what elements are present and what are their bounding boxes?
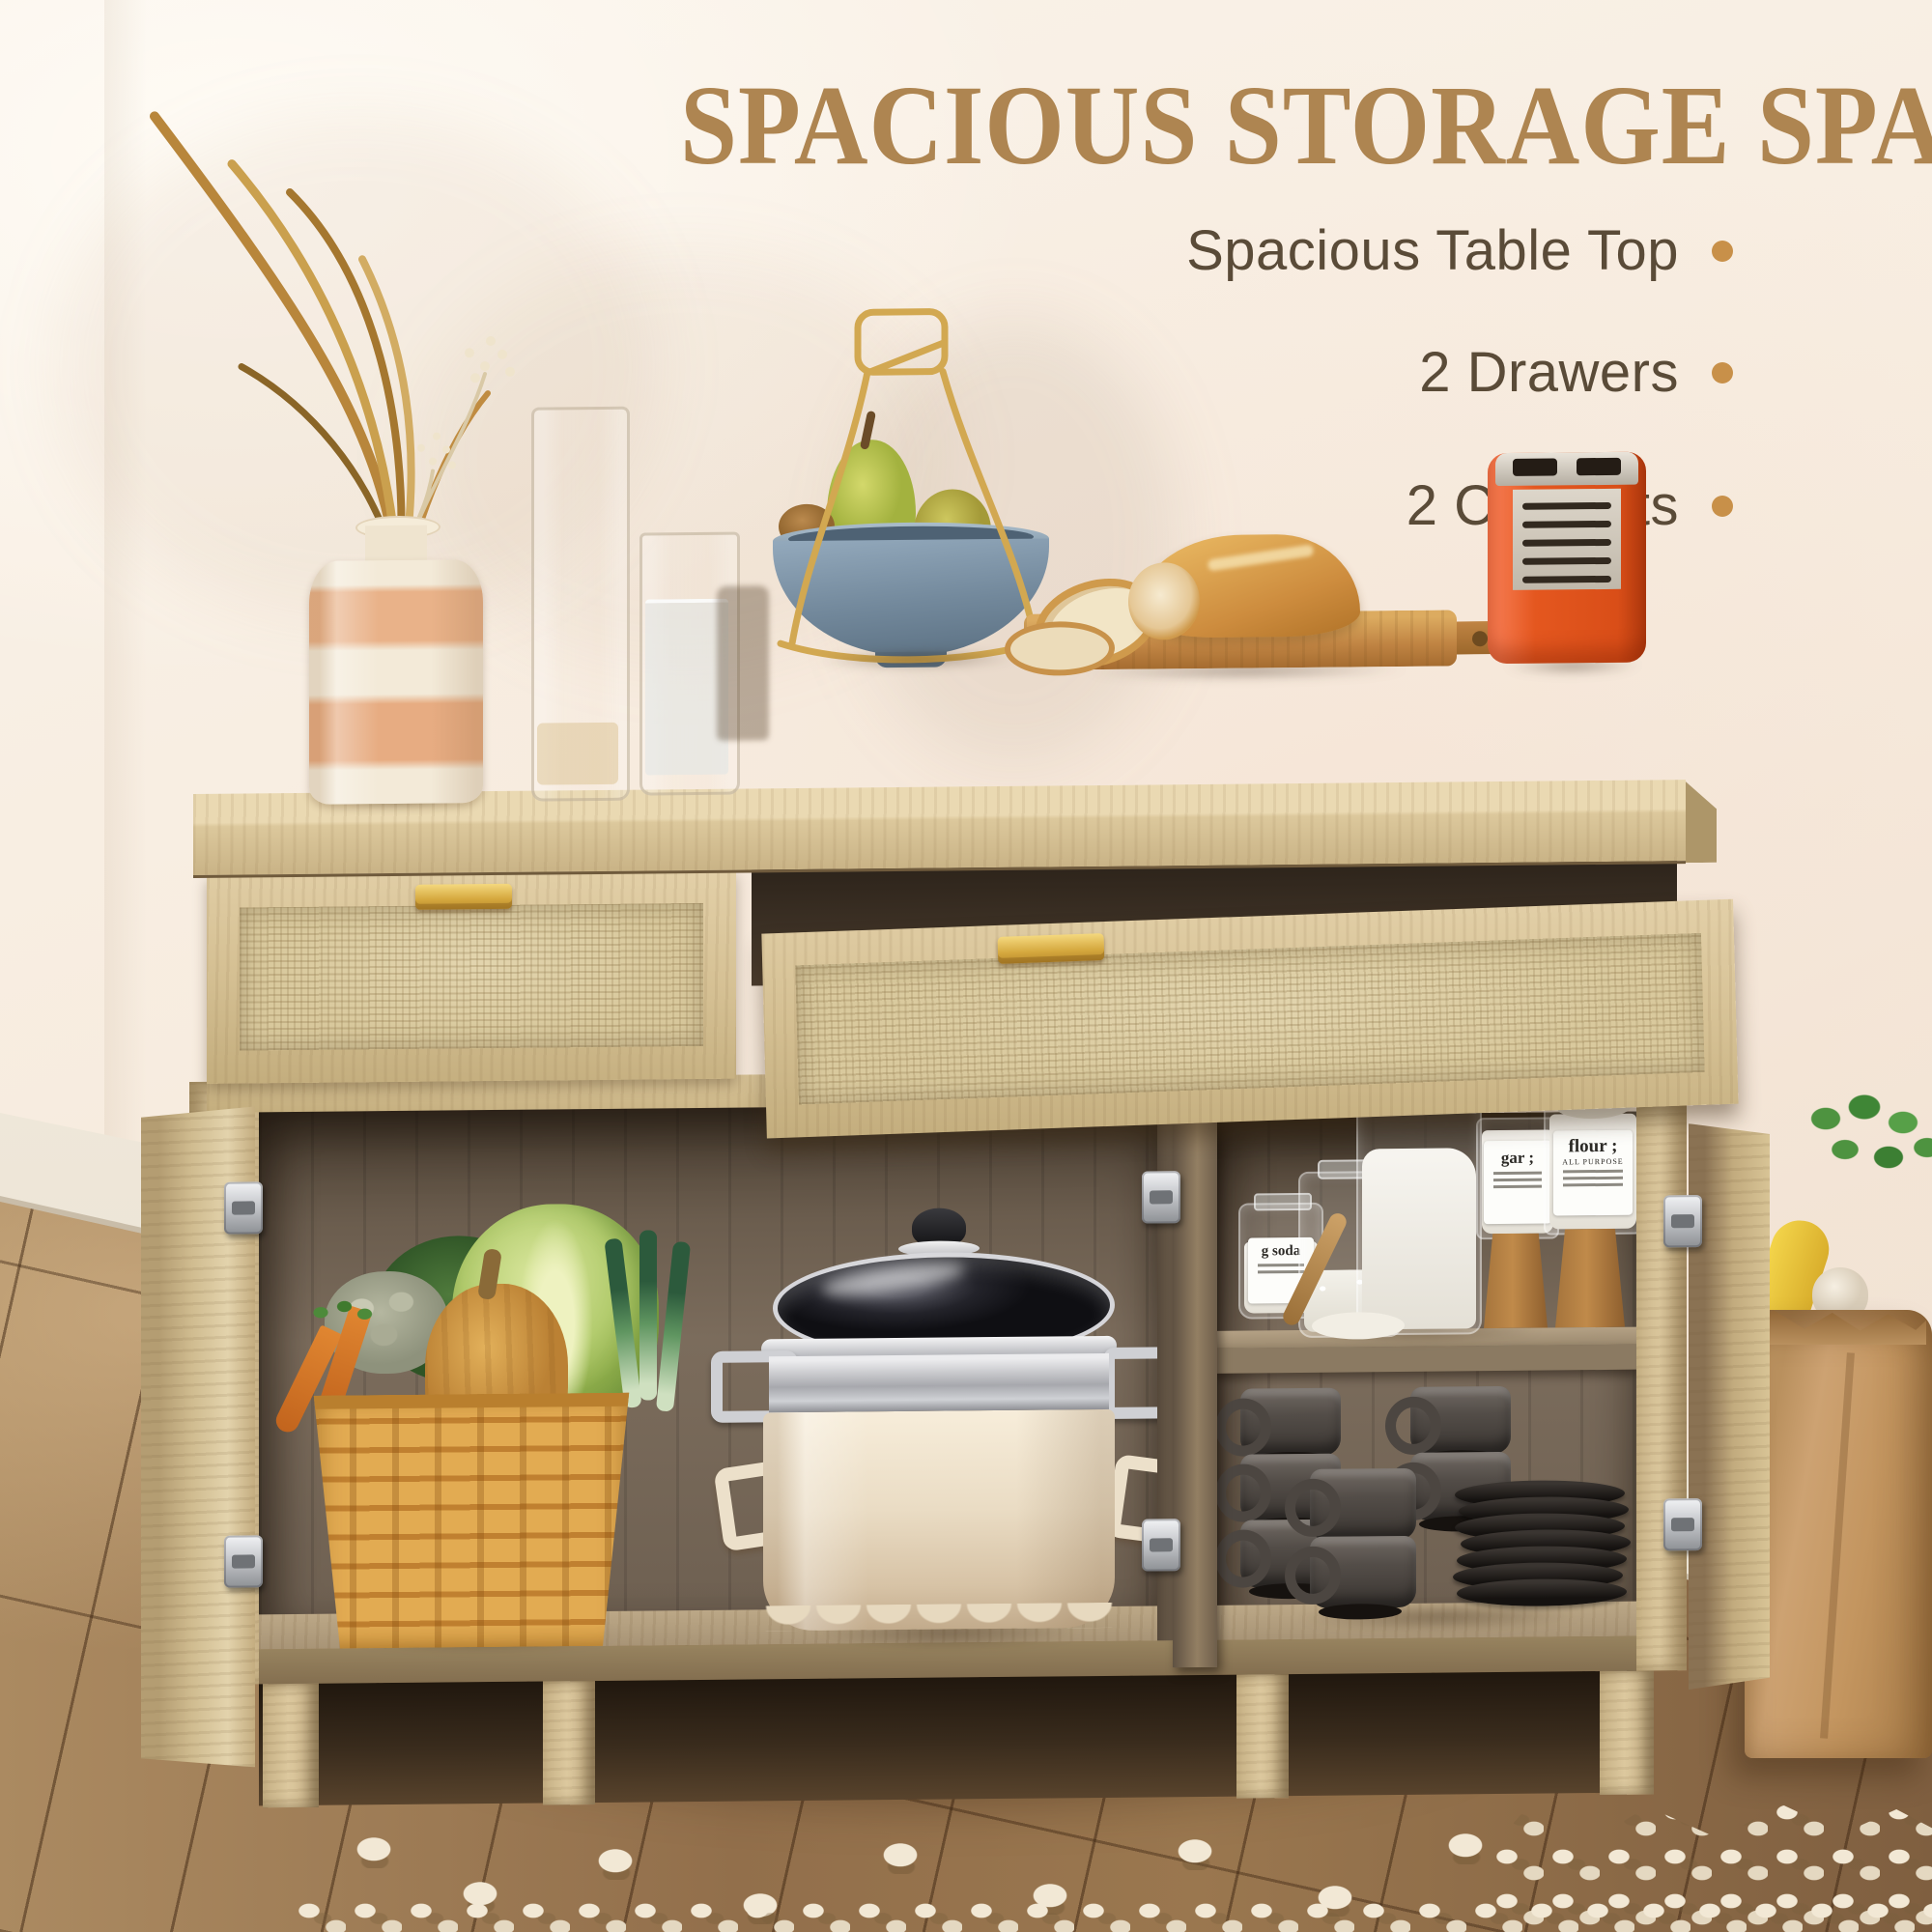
- rug-tuft: [348, 1835, 400, 1868]
- door-hinge-icon: [1142, 1171, 1180, 1223]
- cutting-board-hole: [1472, 631, 1488, 646]
- rug-tuft: [1439, 1832, 1492, 1864]
- wicker-basket: [307, 1393, 636, 1649]
- cabinet-right-stile: [1636, 1104, 1687, 1670]
- cabinet-shelf-face: [1215, 1345, 1636, 1374]
- jar-label-text: flour ;: [1553, 1136, 1633, 1158]
- toaster-slot: [1577, 458, 1621, 475]
- white-rug-edge: [290, 1897, 1932, 1932]
- jar-sublabel-text: ALL PURPOSE: [1553, 1157, 1633, 1167]
- jar-contents: [1362, 1148, 1476, 1329]
- under-cabinet-recess: [259, 1671, 1636, 1806]
- pot-scalloped-base: [763, 1603, 1115, 1631]
- jar-wood-stand: [1484, 1234, 1548, 1329]
- gold-wire-basket-stand: [753, 298, 1063, 678]
- drawer-left-closed: [207, 870, 736, 1084]
- dried-grass-plant: [87, 54, 589, 600]
- drawer-handle: [998, 933, 1105, 964]
- door-hinge-icon: [1663, 1195, 1702, 1247]
- coffee-mug: [1240, 1388, 1341, 1457]
- rug-tuft: [1169, 1837, 1221, 1870]
- pot-steamer-band: [769, 1353, 1109, 1412]
- jar-label-text: g soda: [1262, 1243, 1300, 1259]
- carrot-greens: [307, 1293, 375, 1332]
- glass-vase-reflection: [537, 723, 618, 785]
- cabinet-leg: [1600, 1670, 1654, 1795]
- rug-tuft: [874, 1841, 926, 1874]
- cabinet-leg: [543, 1681, 595, 1805]
- bread-loaf-end: [1128, 562, 1200, 640]
- toaster-steel-panel: [1513, 489, 1621, 590]
- cabinet-leg: [1236, 1674, 1289, 1799]
- door-hinge-icon: [224, 1535, 263, 1587]
- product-marketing-image: SPACIOUS STORAGE SPACE Spacious Table To…: [0, 0, 1932, 1932]
- rug-tuft: [589, 1847, 641, 1880]
- toaster-slot: [1513, 458, 1557, 475]
- drawer-right-open: [761, 899, 1738, 1139]
- jar-wood-stand: [1555, 1229, 1625, 1328]
- pot-cream-body: [763, 1409, 1115, 1631]
- striped-ceramic-vase: [309, 559, 483, 805]
- tabletop-right-end: [1686, 781, 1717, 863]
- coffee-mug: [1410, 1386, 1511, 1455]
- drawer-handle: [415, 884, 512, 910]
- jar-label: flour ; ALL PURPOSE: [1553, 1130, 1633, 1216]
- flour-bulk-jar: [1356, 1098, 1482, 1335]
- coffee-mug-front: [1310, 1536, 1416, 1608]
- door-hinge-icon: [1663, 1498, 1702, 1550]
- door-hinge-icon: [224, 1181, 263, 1234]
- cabinet-leg: [263, 1684, 319, 1808]
- leek: [639, 1230, 657, 1400]
- drawer-rattan-panel: [795, 933, 1704, 1104]
- sideboard-group: g soda gar ; flour ; ALL PURPOSE: [0, 0, 1932, 1932]
- door-hinge-icon: [1142, 1519, 1180, 1571]
- drawer-rattan-panel: [240, 903, 703, 1051]
- jar-label-text: gar ;: [1501, 1149, 1534, 1167]
- flour-label-jar: flour ; ALL PURPOSE: [1544, 1103, 1642, 1236]
- jar-label: gar ;: [1484, 1141, 1551, 1225]
- coffee-mug-front: [1310, 1468, 1416, 1541]
